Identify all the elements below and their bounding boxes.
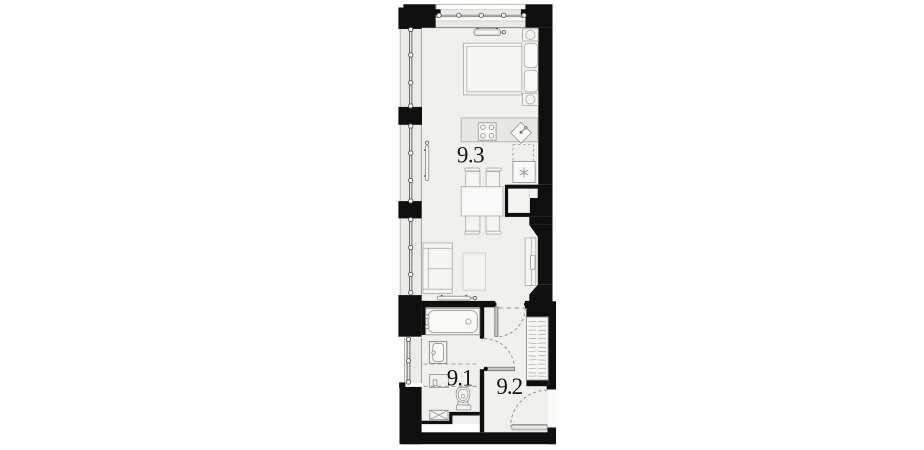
- svg-text:9.2: 9.2: [496, 374, 522, 399]
- svg-text:9.1: 9.1: [447, 366, 473, 391]
- svg-text:9.3: 9.3: [457, 143, 484, 168]
